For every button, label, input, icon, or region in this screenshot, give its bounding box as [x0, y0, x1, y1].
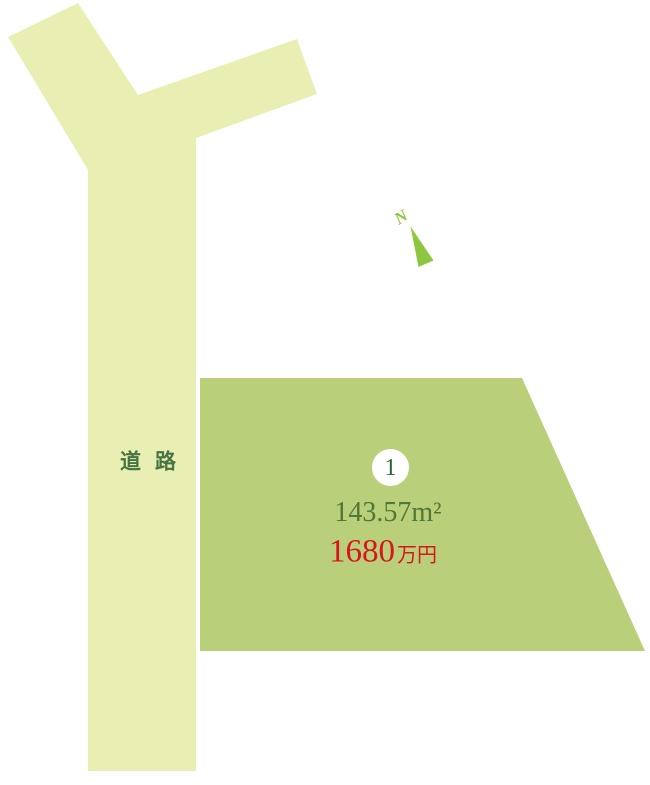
- site-plan-canvas: [0, 0, 650, 785]
- compass-needle-icon: [411, 227, 434, 268]
- plot-number: 1: [385, 456, 397, 480]
- plot-price-value: 1680: [329, 536, 395, 569]
- plot-price-label: 1680 万円: [329, 536, 437, 569]
- plot-number-badge: 1: [372, 449, 409, 486]
- plot-price-unit: 万円: [397, 546, 437, 566]
- land-plot-diagram: 道路 N 1 143.57m² 1680 万円: [0, 0, 650, 785]
- plot-area-label: 143.57m²: [334, 499, 441, 527]
- road-label: 道路: [106, 452, 190, 473]
